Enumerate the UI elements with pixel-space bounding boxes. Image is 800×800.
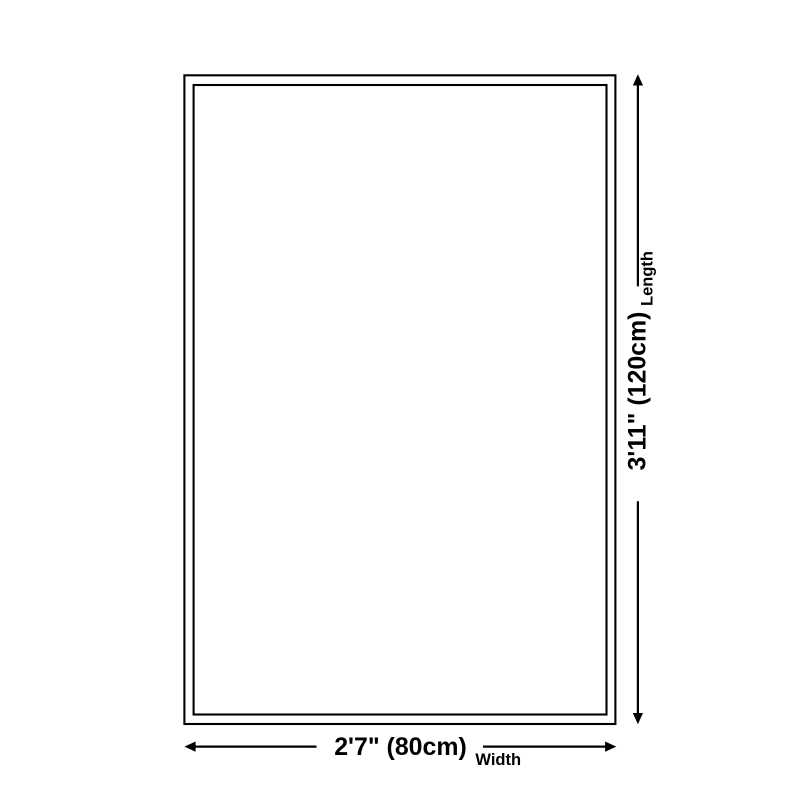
svg-text:2'7" (80cm): 2'7" (80cm): [334, 733, 467, 761]
svg-text:Length: Length: [639, 251, 657, 306]
svg-text:3'11" (120cm): 3'11" (120cm): [623, 312, 651, 471]
svg-text:Width: Width: [475, 751, 521, 769]
